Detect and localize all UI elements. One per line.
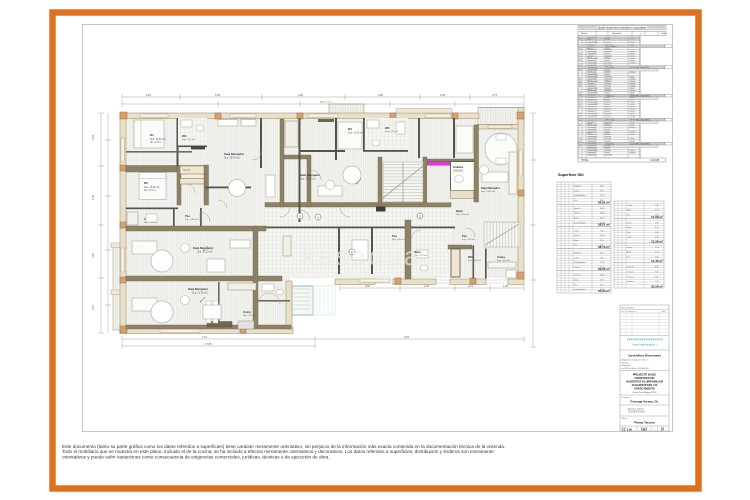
svg-text:7,50: 7,50 [655,276,659,278]
svg-text:Sup. 23,60 m2: Sup. 23,60 m2 [481,191,496,193]
svg-text:Sup. 3,70 m2: Sup. 3,70 m2 [182,139,196,141]
svg-text:4,60: 4,60 [600,284,604,286]
svg-text:11,08 m²: 11,08 m² [651,215,663,219]
svg-text:Pas: Pas [392,234,397,238]
svg-text:Sup. 3,70 m2: Sup. 3,70 m2 [385,131,399,133]
svg-text:Sup. 21,90 m2: Sup. 21,90 m2 [192,291,208,294]
svg-text:1:1, 1:50: 1:1, 1:50 [622,428,633,432]
svg-text:7,10: 7,10 [202,335,208,339]
svg-text:21,10: 21,10 [600,195,605,197]
svg-text:2,55: 2,55 [440,93,446,97]
svg-text:17,55: 17,55 [205,342,212,346]
svg-text:Total: Total [661,32,666,35]
svg-text:Cuina: Cuina [243,310,251,314]
svg-text:3,30: 3,30 [91,252,95,258]
svg-text:2,05: 2,05 [503,284,509,288]
svg-text:-: - [654,429,655,432]
svg-text:4,20: 4,20 [298,93,304,97]
svg-text:Sala Menjador: Sala Menjador [574,289,586,291]
svg-text:Carrer Gran Migrana Nº 46: Carrer Gran Migrana Nº 46 [633,391,658,394]
svg-text:Bany: Bany [627,227,631,229]
svg-text:22,50: 22,50 [600,262,605,264]
svg-text:D1: D1 [150,133,154,137]
svg-text:10,20: 10,20 [600,213,605,215]
svg-text:tel. 938 000 000 m. 600 000 0: tel. 938 000 000 m. 600 000 000 [622,367,649,370]
svg-text:10 HABITATGES I 21: 10 HABITATGES I 21 [631,383,658,387]
svg-text:Planta Tercera: Planta Tercera [634,421,655,425]
svg-text:7,30: 7,30 [600,230,604,232]
svg-text:2,75: 2,75 [492,93,498,97]
svg-text:Sup. 21,10 m2: Sup. 21,10 m2 [197,250,213,253]
svg-text:Formiga Verava, DL: Formiga Verava, DL [630,400,658,404]
svg-text:Sala Menjador: Sala Menjador [300,173,321,177]
svg-text:Dorm. 1: Dorm. 1 [574,208,580,210]
svg-text:Terrassa: Terrassa [627,267,634,269]
svg-text:D2: D2 [144,181,148,185]
svg-text:Sup. 4,20 m2: Sup. 4,20 m2 [456,214,470,216]
svg-text:Sup. 2,60 m2: Sup. 2,60 m2 [468,260,482,262]
svg-text:Bany: Bany [627,210,631,212]
svg-text:Bany: Bany [456,209,463,213]
svg-text:Rebedor: Rebedor [183,170,191,172]
svg-text:Sala Menjador: Sala Menjador [188,287,209,291]
svg-text:Sup. 11,20 m2: Sup. 11,20 m2 [348,131,364,134]
svg-text:8,30: 8,30 [655,267,659,269]
svg-text:Pas: Pas [462,234,467,238]
svg-text:Cuina: Cuina [497,255,505,259]
svg-text:100x120: 100x120 [453,168,464,172]
svg-text:Cuina: Cuina [627,237,632,239]
svg-text:Terrassa: Terrassa [627,281,634,283]
svg-text:Dorm. 2: Dorm. 2 [574,213,580,215]
svg-text:Barcelona: Barcelona [622,364,631,367]
svg-text:APARCAMENTS: APARCAMENTS [634,387,655,391]
svg-text:58,73 m²: 58,73 m² [598,245,610,249]
svg-text:3,45: 3,45 [91,194,95,200]
svg-text:Pas: Pas [574,200,577,202]
svg-text:11,36 m²: 11,36 m² [651,239,663,243]
svg-text:data: data [662,310,666,313]
svg-text:2,30: 2,30 [655,222,659,224]
svg-text:Manresa, a 08 de: Manresa, a 08 de [628,409,644,411]
svg-text:Dorm: Dorm [627,247,632,249]
svg-text:10,90: 10,90 [600,235,605,237]
svg-text:Sup. 20,40 m2: Sup. 20,40 m2 [224,156,240,159]
svg-text:Terrassa: Terrassa [627,272,634,274]
svg-text:Cuina: Cuina [627,205,632,207]
svg-text:Sala Menjador: Sala Menjador [574,262,586,264]
svg-text:orientativos y puede sufrir va: orientativos y puede sufrir variaciones … [62,454,330,459]
svg-text:Rebedor: Rebedor [574,186,581,188]
svg-text:Dorm. 1: Dorm. 1 [574,235,580,237]
svg-text:Dorm. 2: Dorm. 2 [574,275,580,277]
svg-text:7,90: 7,90 [600,257,604,259]
svg-text:3,25: 3,25 [91,134,95,140]
svg-text:TOTAL: TOTAL [581,159,589,162]
svg-text:7,90: 7,90 [600,190,604,192]
svg-text:Pas: Pas [185,214,190,218]
svg-text:rev. int. descripció: rev. int. descripció [622,310,636,313]
svg-text:Pas: Pas [627,215,630,217]
svg-text:Quadre superficies construides: Quadre superficies construides i computa… [598,27,647,30]
svg-text:58,51 m²: 58,51 m² [598,223,610,227]
svg-text:Terrassa: Terrassa [627,276,634,278]
svg-text:3,80: 3,80 [378,93,384,97]
svg-text:Sala Menjador: Sala Menjador [574,195,586,197]
svg-text:Cuina: Cuina [574,190,579,192]
svg-text:59,85 m²: 59,85 m² [598,267,610,271]
svg-text:4,10: 4,10 [600,186,604,188]
svg-text:Alt. 2,70 m: Alt. 2,70 m [144,189,155,192]
svg-text:30,58 m²: 30,58 m² [651,284,663,288]
svg-text:10,20: 10,20 [600,275,605,277]
svg-text:3,70: 3,70 [655,210,659,212]
svg-text:3,70: 3,70 [655,252,659,254]
svg-text:11,46 m²: 11,46 m² [651,259,663,263]
svg-text:Sup. 4,60 m2: Sup. 4,60 m2 [185,219,199,221]
svg-text:Sala Menjador: Sala Menjador [193,246,214,250]
svg-text:3,70: 3,70 [655,227,659,229]
svg-text:9,05: 9,05 [404,335,410,339]
svg-text:Sala Menjador: Sala Menjador [481,186,501,190]
svg-text:2,10: 2,10 [468,284,474,288]
svg-text:WC: WC [385,126,390,130]
svg-text:Bany: Bany [574,218,578,220]
svg-text:WC: WC [182,134,187,138]
svg-text:WC: WC [468,255,473,259]
svg-text:kasaqua: kasaqua [302,241,421,271]
svg-text:Pas: Pas [574,284,577,286]
svg-text:Rebedor: Rebedor [574,253,581,255]
svg-text:Cuina: Cuina [574,230,579,232]
svg-text:Dorm: Dorm [627,222,632,224]
svg-text:D3: D3 [348,127,352,131]
svg-text:Pas: Pas [627,232,630,234]
svg-text:Revisió Notes: Revisió Notes [622,307,636,310]
svg-text:Arquitecte Col·legiat nº 11111: Arquitecte Col·legiat nº 11111-1 [622,359,648,362]
svg-text:Planta: Planta [581,32,588,35]
svg-text:4,05: 4,05 [215,93,221,97]
svg-text:Superficie Útil: Superficie Útil [558,172,584,177]
svg-text:3,70: 3,70 [600,218,604,220]
svg-text:3,10: 3,10 [91,304,95,310]
svg-text:7,28: 7,28 [655,272,659,274]
svg-text:Sala Menjador: Sala Menjador [574,222,586,224]
svg-text:lava Arquitectura |: lava Arquitectura | [633,343,657,347]
svg-text:Bany: Bany [627,252,631,254]
svg-text:Alt. 2,70 m: Alt. 2,70 m [150,141,161,144]
svg-text:2,30: 2,30 [655,237,659,239]
svg-text:CONSTRUCCIO: CONSTRUCCIO [634,376,654,380]
svg-text:1.113,86: 1.113,86 [650,159,660,162]
svg-text:novembre de 2023: novembre de 2023 [628,411,646,413]
svg-text:Cabina: Cabina [453,165,463,169]
svg-text:3,30: 3,30 [424,284,430,288]
svg-text:7,50: 7,50 [655,281,659,283]
svg-text:Promotor: Promotor [622,396,630,399]
svg-text:Plànol: Plànol [622,418,628,420]
svg-text:1923: 1923 [641,428,647,432]
svg-text:5,46: 5,46 [655,257,659,259]
svg-text:Sup. 7,30 m2: Sup. 7,30 m2 [243,315,257,317]
svg-text:Sup. 4,10 m2: Sup. 4,10 m2 [462,239,476,241]
svg-text:4,10: 4,10 [600,253,604,255]
svg-text:5,36: 5,36 [655,232,659,234]
svg-text:2,30: 2,30 [655,247,659,249]
svg-text:Balcó 2,1 m: Balcó 2,1 m [320,102,332,104]
svg-text:Sala Menjador: Sala Menjador [224,152,245,156]
svg-text:Pas: Pas [627,257,630,259]
svg-text:3,10: 3,10 [146,93,152,97]
svg-text:Superficie: Superficie [612,32,623,35]
svg-text:Manresa: Manresa [622,361,630,364]
svg-text:Cuina: Cuina [574,257,579,259]
svg-text:Sup. 22,50 m2: Sup. 22,50 m2 [300,177,316,180]
svg-text:Sup. 7,90 m2: Sup. 7,90 m2 [144,222,158,224]
svg-text:3,70: 3,70 [600,240,604,242]
svg-text:56,91 m²: 56,91 m² [598,200,610,204]
svg-text:3,60: 3,60 [365,284,371,288]
svg-text:3,70: 3,70 [600,280,604,282]
svg-text:Bany: Bany [574,240,578,242]
svg-text:55,94 m²: 55,94 m² [598,289,610,293]
svg-text:2,30: 2,30 [655,205,659,207]
svg-text:Jordi Masó Remonedo: Jordi Masó Remonedo [628,354,661,358]
svg-text:Bany: Bany [574,280,578,282]
svg-text:10,90: 10,90 [600,208,605,210]
svg-text:Pas: Pas [574,245,577,247]
svg-text:HABITATGE PLURIFAMILIAR: HABITATGE PLURIFAMILIAR [626,380,663,384]
svg-text:Dorm. 1: Dorm. 1 [574,267,580,269]
svg-text:PROJECTE BASIC: PROJECTE BASIC [633,373,657,377]
